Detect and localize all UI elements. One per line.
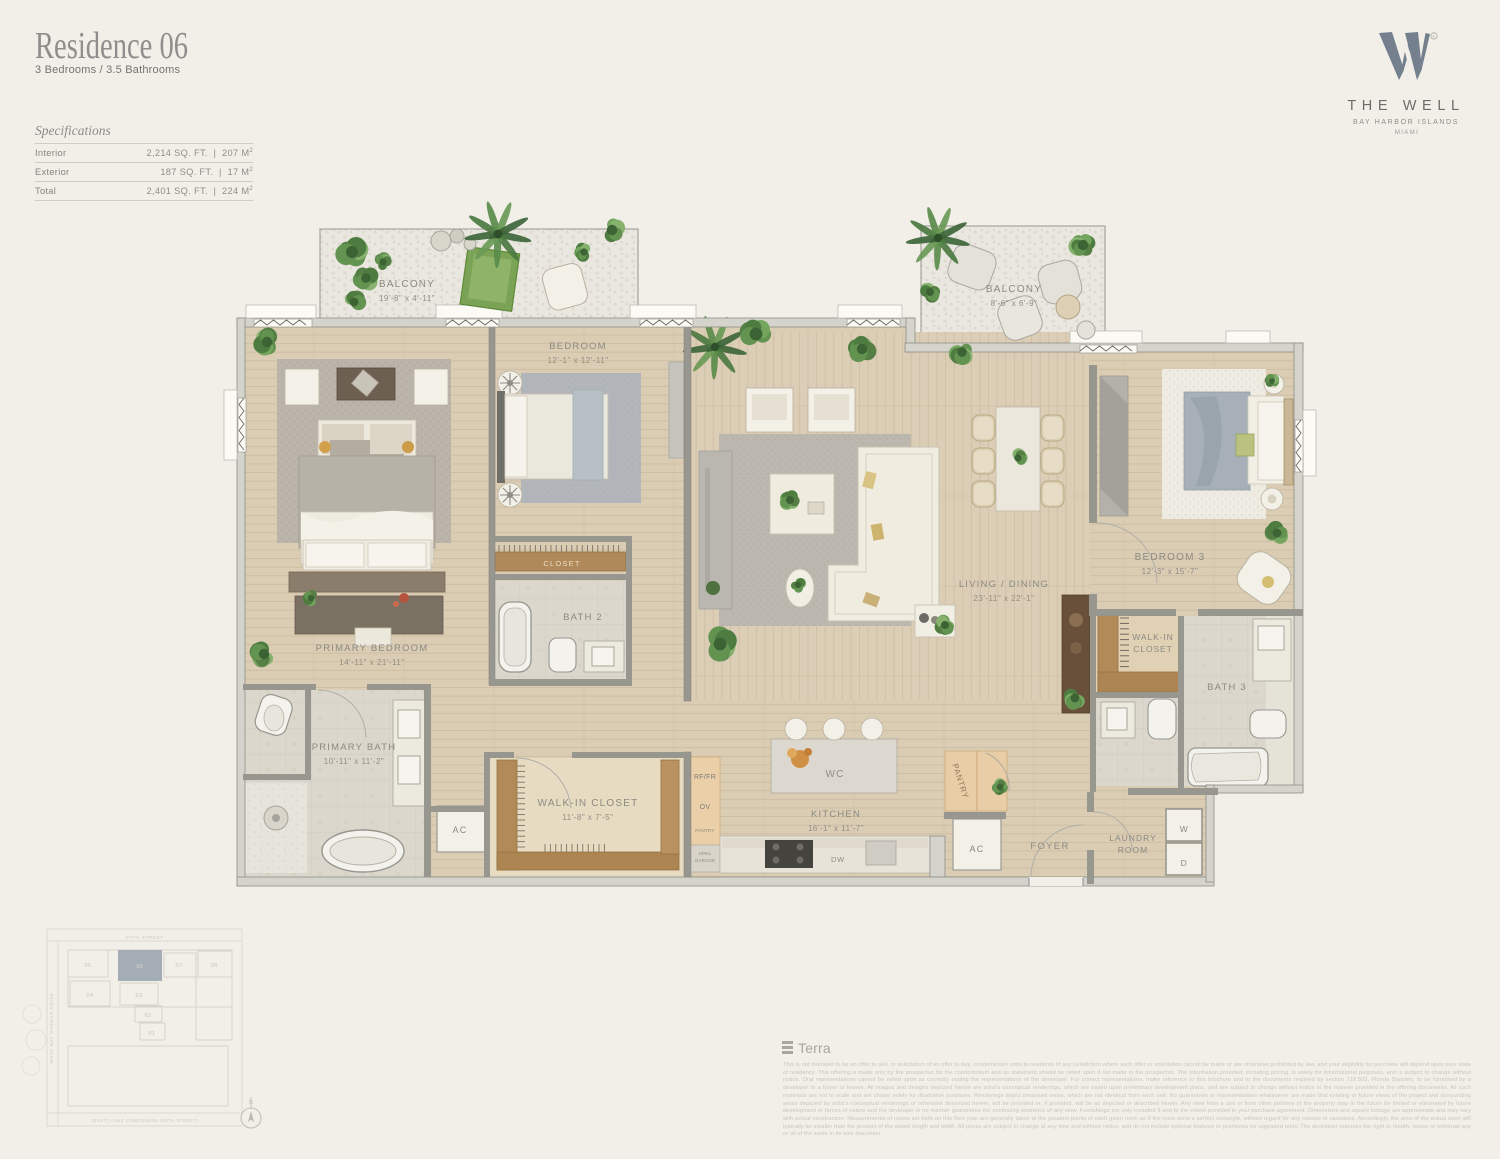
svg-text:(EAST) KANE CONCOURSE (96TH ST: (EAST) KANE CONCOURSE (96TH STREET): [91, 1118, 198, 1123]
svg-text:OV: OV: [700, 804, 711, 811]
svg-text:R: R: [1433, 34, 1436, 39]
svg-text:03: 03: [136, 993, 143, 999]
svg-text:Terra: Terra: [798, 1040, 831, 1056]
svg-text:10'-11" x 11'-2": 10'-11" x 11'-2": [324, 757, 384, 766]
svg-text:THE WELL: THE WELL: [1347, 98, 1464, 114]
svg-text:N: N: [249, 1100, 253, 1106]
svg-text:BALCONY: BALCONY: [986, 284, 1042, 295]
svg-text:ROOM: ROOM: [1118, 845, 1148, 855]
svg-text:11'-8" x 7'-5": 11'-8" x 7'-5": [562, 813, 613, 822]
svg-text:Residence 06: Residence 06: [35, 25, 188, 67]
svg-text:KITCHEN: KITCHEN: [811, 809, 861, 820]
svg-text:07: 07: [176, 963, 183, 969]
svg-text:MIAMI: MIAMI: [1395, 130, 1419, 136]
svg-text:SPKL: SPKL: [699, 851, 712, 856]
svg-text:14'-11" x 21'-11": 14'-11" x 21'-11": [339, 658, 404, 667]
svg-text:W: W: [1180, 824, 1189, 834]
svg-text:19'-8" x 4'-11": 19'-8" x 4'-11": [379, 294, 435, 303]
svg-text:CLOSET: CLOSET: [1133, 644, 1172, 654]
svg-text:CLOSET: CLOSET: [543, 559, 580, 568]
svg-text:08: 08: [211, 963, 218, 969]
svg-text:97TH STREET: 97TH STREET: [126, 935, 164, 940]
svg-text:23'-11" x 22'-1": 23'-11" x 22'-1": [973, 594, 1034, 603]
svg-text:PRIMARY BEDROOM: PRIMARY BEDROOM: [316, 643, 429, 654]
svg-text:LAUNDRY: LAUNDRY: [1109, 833, 1156, 843]
svg-text:BALCONY: BALCONY: [379, 279, 435, 290]
svg-text:DW: DW: [831, 855, 845, 864]
svg-text:12'-1" x 12'-11": 12'-1" x 12'-11": [547, 356, 608, 365]
svg-text:GARAGE: GARAGE: [695, 858, 716, 863]
svg-text:WEST BAY HARBOR DRIVE: WEST BAY HARBOR DRIVE: [49, 993, 54, 1064]
svg-text:WALK-IN: WALK-IN: [1132, 632, 1173, 642]
svg-text:LIVING / DINING: LIVING / DINING: [959, 579, 1049, 590]
svg-text:05: 05: [85, 963, 92, 969]
svg-text:02: 02: [145, 1013, 152, 1019]
svg-text:D: D: [1181, 858, 1188, 868]
svg-text:PRIMARY BATH: PRIMARY BATH: [312, 742, 397, 753]
svg-text:BATH 2: BATH 2: [563, 612, 603, 623]
svg-text:WC: WC: [825, 769, 844, 780]
svg-text:BATH 3: BATH 3: [1207, 682, 1247, 693]
svg-text:01: 01: [149, 1031, 156, 1037]
svg-text:RF/FR: RF/FR: [694, 774, 716, 781]
svg-text:AC: AC: [970, 844, 985, 854]
svg-text:WALK-IN CLOSET: WALK-IN CLOSET: [538, 798, 639, 809]
svg-text:8'-6" x 6'-9": 8'-6" x 6'-9": [991, 299, 1038, 308]
svg-text:06: 06: [137, 964, 144, 970]
svg-text:BEDROOM 3: BEDROOM 3: [1135, 552, 1206, 563]
svg-text:16'-1" x 11'-7": 16'-1" x 11'-7": [808, 824, 864, 833]
svg-text:FOYER: FOYER: [1030, 841, 1069, 852]
svg-text:PANTRY: PANTRY: [695, 828, 714, 833]
svg-text:04: 04: [87, 993, 94, 999]
svg-text:BEDROOM: BEDROOM: [549, 341, 607, 352]
svg-text:BAY HARBOR ISLANDS: BAY HARBOR ISLANDS: [1353, 119, 1459, 126]
svg-text:12'-3" x 15'-7": 12'-3" x 15'-7": [1142, 567, 1199, 576]
svg-text:AC: AC: [453, 825, 468, 835]
